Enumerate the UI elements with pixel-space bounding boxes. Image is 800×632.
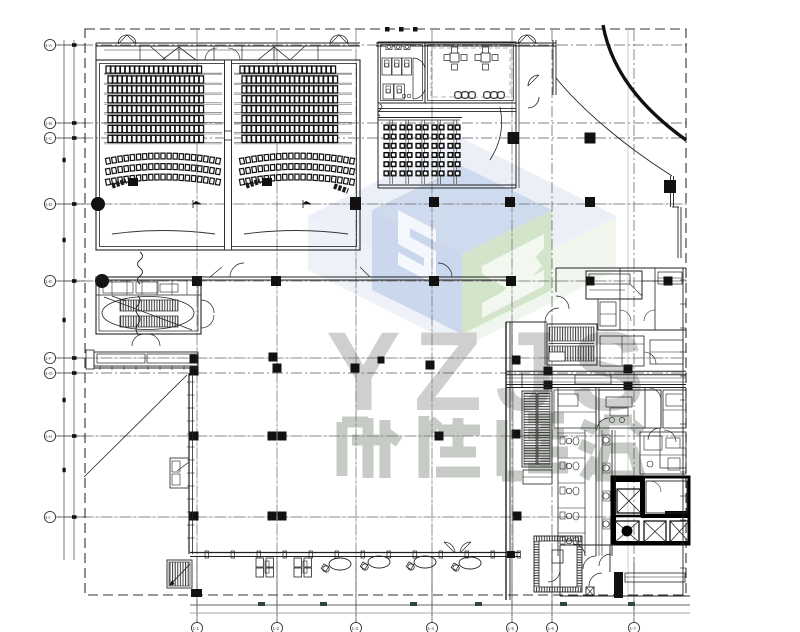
svg-text:1-1: 1-1 — [193, 626, 200, 631]
svg-text:1-5: 1-5 — [508, 626, 515, 631]
svg-text:1-B: 1-B — [45, 121, 52, 126]
svg-text:1-F: 1-F — [45, 356, 52, 361]
svg-text:1-C: 1-C — [45, 136, 53, 141]
svg-text:1-D: 1-D — [45, 202, 53, 207]
svg-text:1-A: 1-A — [45, 43, 52, 48]
svg-text:1-I: 1-I — [45, 515, 50, 520]
svg-text:1-7: 1-7 — [630, 626, 637, 631]
svg-text:1-G: 1-G — [45, 371, 53, 376]
svg-text:1-6: 1-6 — [548, 626, 555, 631]
svg-text:1-2: 1-2 — [273, 626, 280, 631]
svg-text:1-H: 1-H — [45, 434, 52, 439]
svg-text:1-4: 1-4 — [428, 626, 435, 631]
svg-text:1-E: 1-E — [45, 279, 52, 284]
svg-text:1-3: 1-3 — [352, 626, 359, 631]
